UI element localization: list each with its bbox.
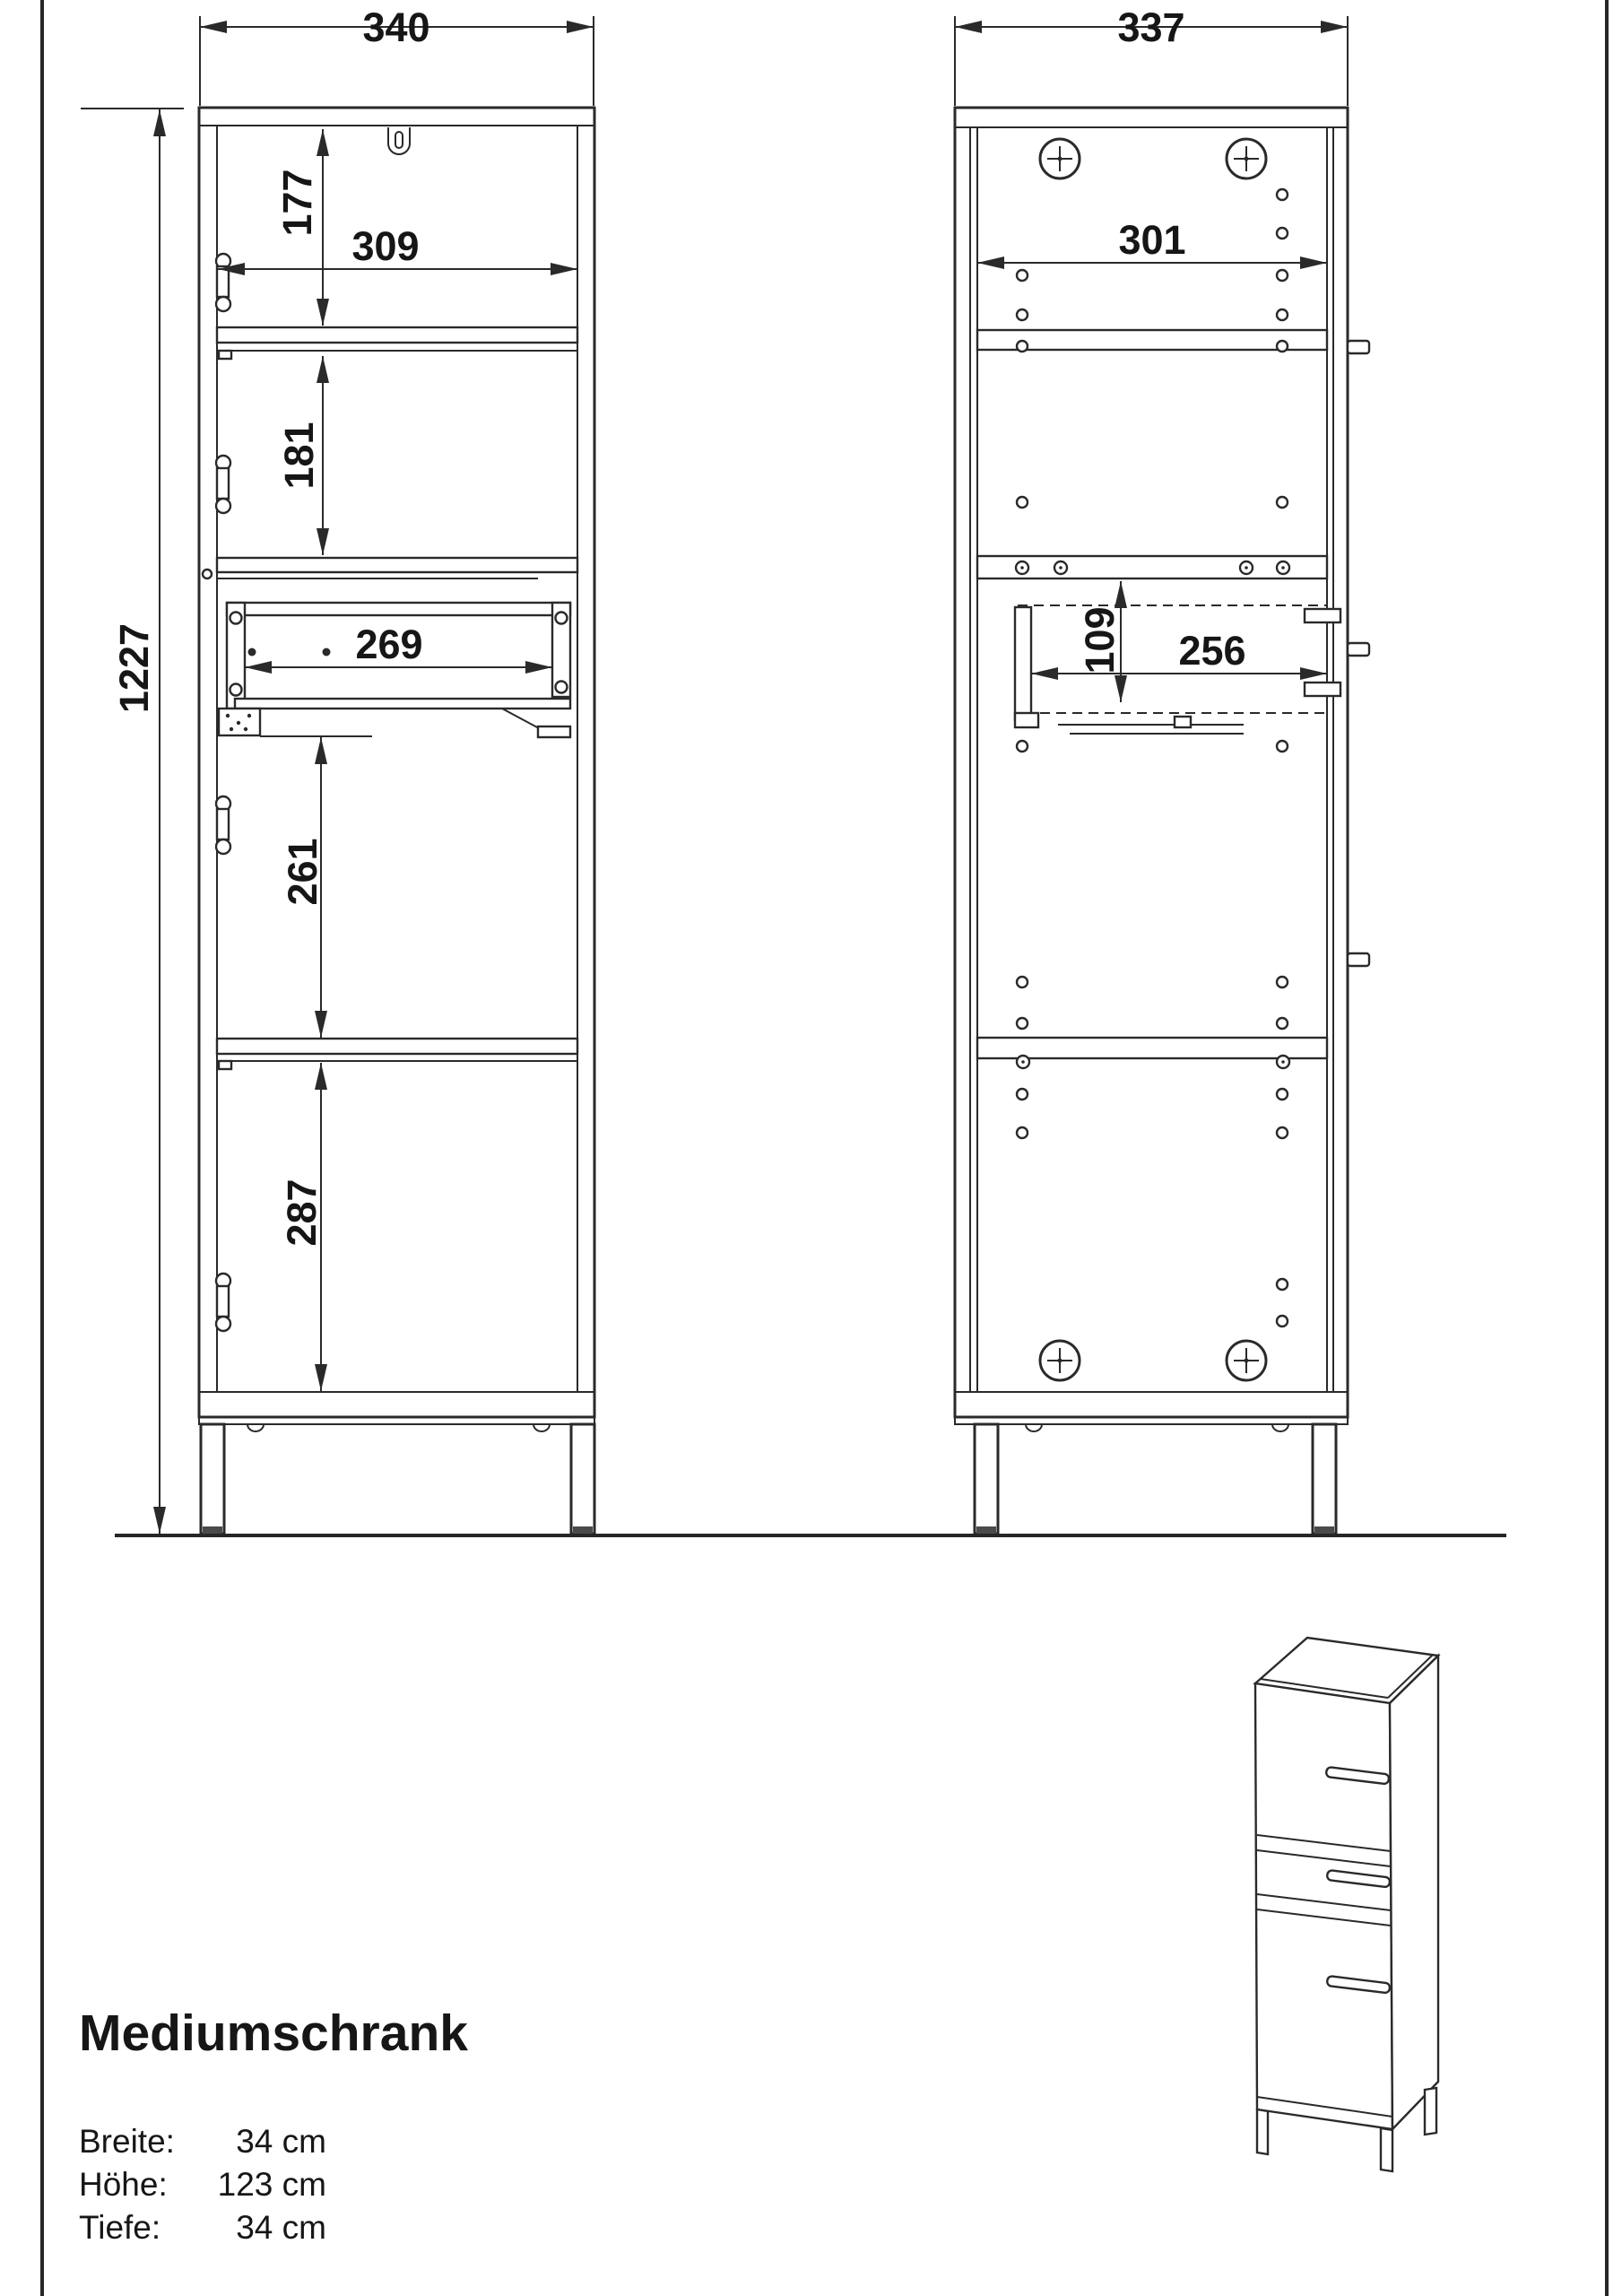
rear-legs (975, 1424, 1336, 1534)
dim-rear-drawer-width-label: 256 (1178, 628, 1245, 674)
perspective-side-face (1390, 1656, 1438, 2129)
rear-shelf-1 (977, 330, 1327, 352)
rear-shelf-3 (977, 1038, 1327, 1068)
spec-label: Höhe: (79, 2163, 168, 2206)
dim-front-upper-door: 181 (276, 356, 329, 555)
dim-front-top-offset: 177 (274, 129, 329, 326)
dim-front-inner-width: 309 (218, 223, 577, 275)
dim-front-height: 1227 (81, 109, 184, 1534)
dim-rear-inner-width: 301 (977, 217, 1327, 269)
perspective-view (1255, 1638, 1438, 2171)
keyhole-bracket (388, 127, 410, 154)
technical-drawing: 340 1227 (0, 0, 1622, 2296)
dim-front-bottom-label: 287 (279, 1178, 325, 1246)
front-shelf-3 (217, 1039, 577, 1069)
front-shelf-2 (203, 558, 577, 578)
screw-icon (1040, 1341, 1080, 1380)
spec-value: 34 cm (236, 2120, 326, 2163)
front-section-view: 340 1227 (81, 4, 594, 1534)
dim-front-drawer-width: 269 (245, 622, 552, 674)
dim-rear-inner-width-label: 301 (1118, 217, 1185, 263)
drawing-title: Mediumschrank (79, 2004, 468, 2063)
dim-front-bottom: 287 (279, 1063, 327, 1391)
dim-front-drawer-width-label: 269 (355, 622, 422, 667)
dim-rear-width: 337 (955, 4, 1348, 106)
hinge-icon (216, 1274, 230, 1331)
spec-value: 123 cm (218, 2163, 326, 2206)
drawing-sheet: 340 1227 (0, 0, 1622, 2296)
front-cabinet-body (199, 108, 594, 1424)
rear-shelf-2 (977, 556, 1327, 578)
dim-front-top-offset-label: 177 (274, 169, 320, 236)
spec-row-height: Höhe: 123 cm (79, 2163, 326, 2206)
dim-front-width: 340 (200, 4, 594, 106)
spec-label: Breite: (79, 2120, 175, 2163)
screw-icon (1227, 1341, 1266, 1380)
door-handle-side (1348, 341, 1369, 353)
hinge-icon (216, 796, 230, 854)
spec-label: Tiefe: (79, 2206, 160, 2249)
dim-rear-drawer-width: 256 (1031, 628, 1327, 680)
dim-front-width-label: 340 (362, 4, 429, 50)
rear-cabinet-body (955, 108, 1348, 1424)
perspective-front-face (1255, 1683, 1392, 2129)
dim-rear-drawer-height: 109 (1077, 581, 1127, 702)
dim-front-height-label: 1227 (111, 623, 157, 713)
spec-row-depth: Tiefe: 34 cm (79, 2206, 326, 2249)
dim-front-inner-width-label: 309 (351, 223, 419, 269)
front-legs (201, 1424, 594, 1534)
drawer-handle-side (1348, 643, 1369, 656)
dim-front-middle-label: 261 (280, 838, 325, 905)
specs-table: Breite: 34 cm Höhe: 123 cm Tiefe: 34 cm (79, 2120, 326, 2249)
shelf-pin-holes (1017, 189, 1288, 1326)
dim-rear-drawer-height-label: 109 (1077, 606, 1123, 674)
front-shelf-1 (217, 327, 577, 359)
hinge-icon (216, 456, 230, 513)
screw-icon (1040, 139, 1080, 178)
dim-front-upper-door-label: 181 (276, 422, 322, 489)
screw-icon (1227, 139, 1266, 178)
spec-row-width: Breite: 34 cm (79, 2120, 326, 2163)
spec-value: 34 cm (236, 2206, 326, 2249)
dim-front-middle: 261 (280, 737, 327, 1038)
dim-rear-width-label: 337 (1117, 4, 1184, 50)
hinge-icon (216, 254, 230, 311)
rear-section-view: 337 (955, 4, 1369, 1534)
door-handle-side (1348, 953, 1369, 966)
